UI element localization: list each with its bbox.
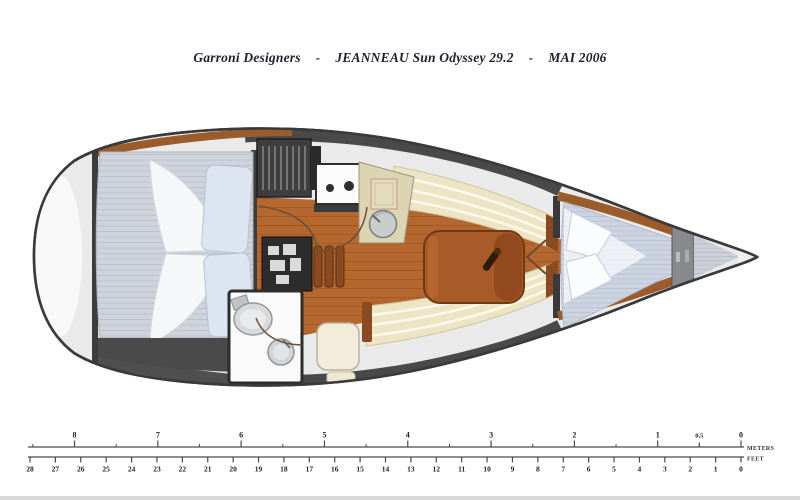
feet-tick-label: 25 [102, 465, 110, 474]
feet-tick-label: 12 [433, 465, 441, 474]
aft-berth-pillow-upper [201, 165, 253, 254]
feet-tick-label: 22 [179, 465, 187, 474]
meters-tick-label: 8 [73, 431, 77, 440]
boat-plan-svg: 876543210,50 METERS 28272625242322212019… [0, 0, 800, 500]
head-sink [268, 339, 294, 365]
feet-tick-label: 11 [458, 465, 465, 474]
feet-tick-label: 2 [688, 465, 692, 474]
feet-tick-label: 28 [26, 465, 34, 474]
feet-tick-label: 15 [356, 465, 364, 474]
companionway-steps [257, 139, 321, 197]
meters-tick-label: 6 [239, 431, 243, 440]
feet-tick-label: 27 [52, 465, 60, 474]
feet-tick-label: 19 [255, 465, 263, 474]
feet-tick-label: 26 [77, 465, 85, 474]
meters-tick-label: 3 [489, 431, 493, 440]
boat-plan-page: Garroni Designers-JEANNEAU Sun Odyssey 2… [0, 0, 800, 500]
companionway-ladder-slats [314, 246, 344, 287]
meters-ruler: 876543210,50 METERS [28, 431, 775, 453]
anchor-locker [672, 226, 694, 287]
transom-highlight [34, 174, 82, 338]
image-bottom-edge [0, 496, 800, 500]
galley-icebox [262, 237, 312, 291]
feet-ruler: 2827262524232221201918171615141312111098… [26, 457, 764, 474]
meters-tick-label: 5 [322, 431, 326, 440]
feet-tick-label: 24 [128, 465, 136, 474]
feet-tick-label: 6 [587, 465, 591, 474]
feet-tick-label: 17 [306, 465, 314, 474]
feet-unit-label: FEET [747, 457, 764, 463]
meters-tick-label: 0 [739, 431, 743, 440]
meters-tick-label: 4 [406, 431, 410, 440]
feet-tick-label: 16 [331, 465, 339, 474]
feet-tick-label: 10 [483, 465, 491, 474]
feet-tick-label: 5 [612, 465, 616, 474]
feet-tick-label: 18 [280, 465, 288, 474]
feet-tick-label: 21 [204, 465, 212, 474]
feet-tick-label: 1 [714, 465, 718, 474]
feet-tick-label: 8 [536, 465, 540, 474]
feet-tick-label: 4 [638, 465, 642, 474]
feet-tick-label: 13 [407, 465, 415, 474]
meters-tick-label: 1 [656, 431, 660, 440]
feet-tick-label: 14 [382, 465, 390, 474]
feet-tick-label: 7 [561, 465, 565, 474]
meters-tick-label: 0,5 [695, 433, 704, 440]
feet-tick-label: 20 [229, 465, 237, 474]
saloon-table [424, 231, 524, 303]
galley-sink [370, 211, 397, 238]
settee-bottom-wood-left [362, 302, 372, 342]
feet-tick-label: 23 [153, 465, 161, 474]
fwd-bulkhead-top [553, 196, 560, 238]
meters-unit-label: METERS [747, 446, 775, 452]
feet-tick-label: 0 [739, 465, 743, 474]
meters-tick-label: 7 [156, 431, 160, 440]
meters-tick-label: 2 [572, 431, 576, 440]
galley-stove [314, 164, 364, 212]
head-compartment [229, 291, 302, 383]
feet-tick-label: 9 [511, 465, 515, 474]
stove-burner-2 [344, 181, 354, 191]
stove-burner-1 [326, 184, 334, 192]
feet-tick-label: 3 [663, 465, 667, 474]
